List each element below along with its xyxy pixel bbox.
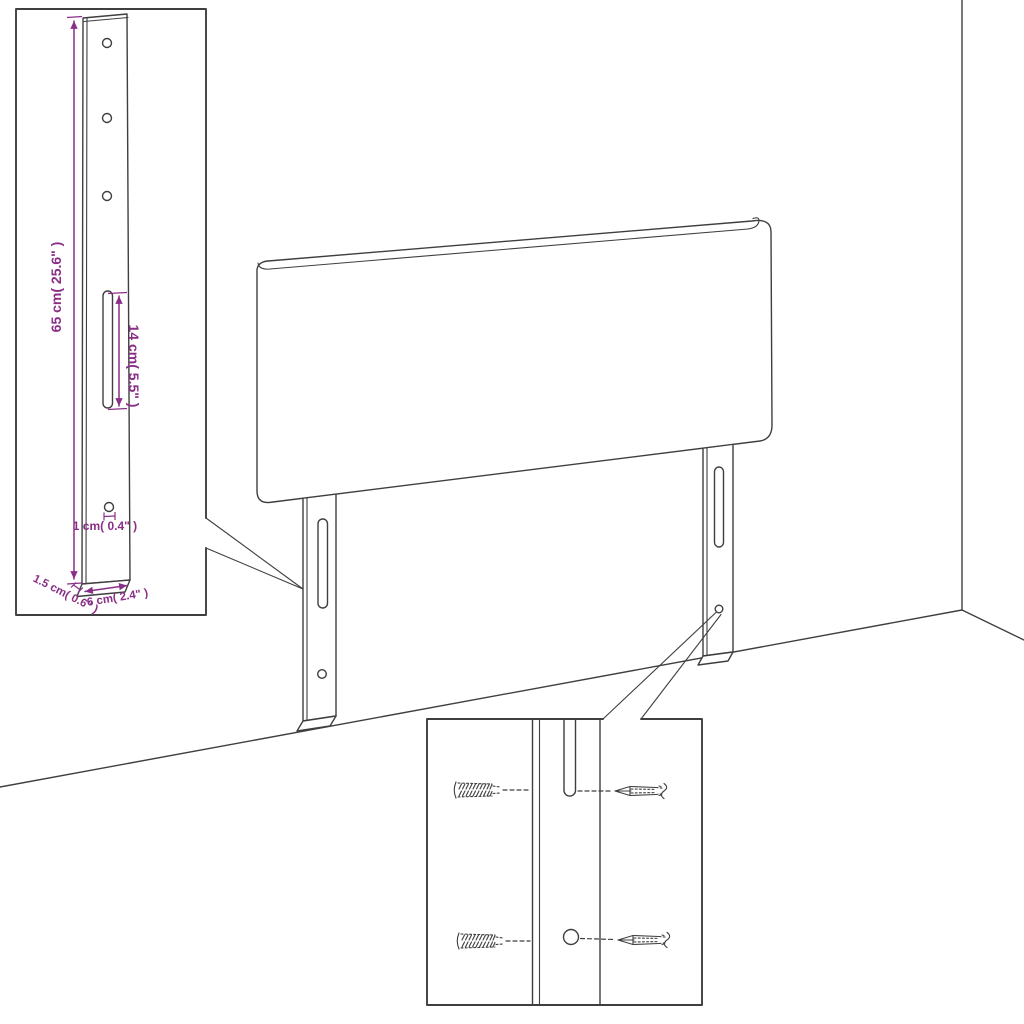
dim-line-hole — [104, 516, 115, 517]
leg-right-slot — [715, 467, 724, 547]
floor-line-right — [962, 610, 1024, 640]
dim-label-hole: 1 cm( 0.4" ) — [73, 519, 137, 533]
callout-wedge-left-leg — [206, 518, 303, 589]
diagram-canvas: 65 cm( 25.6" ) 14 cm( 5.5" ) 1 cm( 0.4" … — [0, 0, 1024, 1024]
detail-box-leg: 65 cm( 25.6" ) 14 cm( 5.5" ) 1 cm( 0.4" … — [16, 9, 206, 616]
dim-label-slot-length: 14 cm( 5.5" ) — [126, 325, 142, 408]
detail-box-mounting — [427, 719, 702, 1005]
headboard-assembly-diagram: 65 cm( 25.6" ) 14 cm( 5.5" ) 1 cm( 0.4" … — [0, 0, 1024, 1024]
callout-line-upper — [206, 518, 303, 589]
detail-leg-slot — [103, 291, 113, 408]
dim-label-leg-height: 65 cm( 25.6" ) — [48, 242, 64, 333]
headboard-leg-left — [297, 495, 336, 731]
headboard-panel — [257, 218, 772, 503]
leg-left-slot — [318, 519, 328, 608]
headboard-leg-right — [698, 445, 733, 665]
headboard-panel-outline — [257, 220, 772, 502]
